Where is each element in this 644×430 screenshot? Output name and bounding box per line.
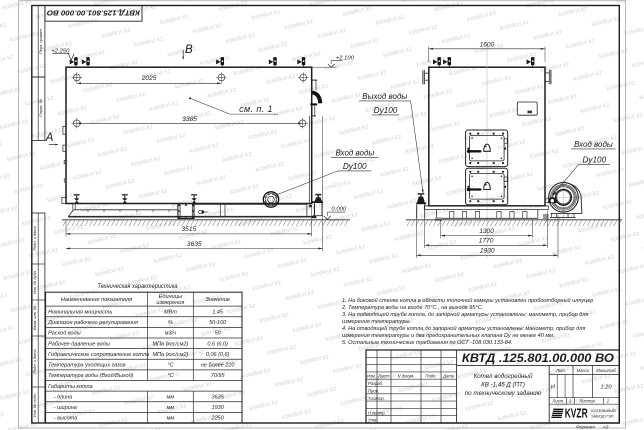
svg-text:Подп.: Подп. — [425, 373, 436, 378]
svg-text:мм: мм — [167, 405, 175, 411]
svg-text:Вход воды: Вход воды — [574, 140, 613, 149]
svg-text:0.000: 0.000 — [331, 207, 346, 213]
svg-text:Температура уходящих газов: Температура уходящих газов — [48, 363, 126, 369]
svg-text:1770: 1770 — [479, 238, 494, 245]
svg-text:Dy100: Dy100 — [582, 156, 606, 165]
svg-text:Разраб.: Разраб. — [368, 381, 383, 386]
svg-text:Справ. №: Справ. № — [38, 98, 43, 116]
svg-text:Температура воды (Вход/Выход): Температура воды (Вход/Выход) — [48, 373, 134, 379]
svg-text:Единицы: Единицы — [159, 294, 182, 300]
svg-text:МВт: МВт — [164, 309, 177, 315]
svg-text:Взам. инв. №: Взам. инв. № — [32, 305, 37, 330]
svg-text:Диапазон рабочего регулировани: Диапазон рабочего регулирования — [47, 320, 138, 326]
svg-text:КВ -1,45 Д (ПТ): КВ -1,45 Д (ПТ) — [481, 381, 525, 388]
svg-text:Номинальная мощность: Номинальная мощность — [48, 309, 112, 315]
svg-text:2250: 2250 — [211, 416, 225, 422]
svg-text:см. п. 1: см. п. 1 — [239, 104, 273, 114]
svg-text:Пров.: Пров. — [368, 389, 379, 394]
svg-text:Лист: Лист — [377, 373, 389, 378]
svg-text:1930: 1930 — [480, 248, 495, 255]
svg-text:- ширина: - ширина — [48, 405, 77, 411]
svg-text:1600: 1600 — [480, 42, 495, 49]
svg-text:1: 1 — [569, 399, 571, 404]
svg-text:3635: 3635 — [187, 241, 202, 248]
svg-text:ЗАВОД РЭП: ЗАВОД РЭП — [591, 414, 613, 419]
svg-text:Рабочее давление воды: Рабочее давление воды — [48, 341, 110, 347]
svg-text:70/95: 70/95 — [211, 373, 226, 379]
svg-text:Выход воды: Выход воды — [362, 92, 407, 101]
svg-text:Котел водогрейный: Котел водогрейный — [474, 373, 533, 380]
svg-text:2. Температура воды на входе: 2. Температура воды на входе 70°С., на в… — [341, 305, 483, 311]
svg-text:3. На подводящей трубе котла,: 3. На подводящей трубе котла, до запорно… — [342, 311, 588, 318]
svg-text:Лит.: Лит. — [555, 368, 566, 373]
svg-text:Инв. № дубл.: Инв. № дубл. — [32, 270, 37, 294]
svg-text:А: А — [45, 132, 54, 144]
svg-text:Т.контр.: Т.контр. — [368, 396, 385, 401]
svg-text:мм: мм — [167, 416, 175, 422]
svg-text:измерения: измерения — [156, 300, 184, 306]
svg-text:1. На боковой стенке котла в: 1. На боковой стенке котла в области топ… — [342, 297, 593, 304]
svg-text:измерения температуры.: измерения температуры. — [342, 319, 411, 325]
svg-text:Формат: Формат — [576, 424, 595, 430]
svg-text:Значение: Значение — [205, 297, 230, 303]
svg-text:В: В — [185, 44, 193, 56]
svg-text:МПа (кгс/см2): МПа (кгс/см2) — [152, 341, 188, 347]
svg-text:измерения температуры и два пр: измерения температуры и два предохраните… — [342, 333, 555, 339]
svg-text:Листов: Листов — [578, 399, 595, 404]
svg-text:50-100: 50-100 — [209, 320, 227, 326]
svg-text:1930: 1930 — [212, 405, 225, 411]
svg-text:м3/ч: м3/ч — [165, 331, 176, 337]
svg-text:3385: 3385 — [182, 116, 197, 123]
svg-text:0,06 (0,6): 0,06 (0,6) — [206, 352, 230, 358]
svg-text:3515: 3515 — [182, 226, 197, 233]
svg-text:Лист: Лист — [551, 399, 563, 404]
svg-text:КОТЕЛЬНЫЙ: КОТЕЛЬНЫЙ — [591, 408, 616, 413]
svg-text:Подп. и дата: Подп. и дата — [32, 225, 37, 250]
svg-text:Утв.: Утв. — [368, 418, 378, 423]
svg-text:Масса: Масса — [577, 368, 590, 373]
svg-text:Габариты котла: Габариты котла — [48, 384, 93, 390]
svg-text:- длина: - длина — [48, 394, 72, 400]
svg-text:1,45: 1,45 — [212, 309, 224, 315]
svg-text:Подп. и дата: Подп. и дата — [32, 348, 37, 373]
svg-text:Дата: Дата — [442, 373, 455, 378]
svg-text:Изм.: Изм. — [367, 373, 376, 378]
svg-text:°С: °С — [167, 363, 173, 369]
svg-text:Инв. № подл.: Инв. № подл. — [32, 393, 37, 417]
svg-text:по техническому заданию: по техническому заданию — [465, 390, 542, 397]
svg-text:Расход воды: Расход воды — [48, 331, 81, 337]
svg-text:Техническая характеристика: Техническая характеристика — [98, 283, 178, 290]
svg-text:А3: А3 — [602, 424, 609, 430]
svg-text:%: % — [168, 320, 173, 326]
svg-text:Dy100: Dy100 — [343, 162, 367, 171]
svg-text:50: 50 — [215, 331, 222, 337]
svg-text:1:20: 1:20 — [600, 384, 612, 390]
svg-text:5. Остальные технические треб: 5. Остальные технические требования по О… — [342, 340, 512, 346]
svg-text:3635: 3635 — [212, 394, 225, 400]
svg-text:KVZR: KVZR — [565, 406, 588, 420]
svg-text:2025: 2025 — [141, 75, 157, 82]
svg-text:1300: 1300 — [479, 228, 494, 235]
svg-text:0,6 (6,0): 0,6 (6,0) — [207, 341, 228, 347]
svg-text:не более 220: не более 220 — [201, 363, 236, 369]
svg-text:N докум.: N докум. — [398, 373, 415, 378]
svg-text:КВТД .125.801.00.000 ВО: КВТД .125.801.00.000 ВО — [462, 351, 614, 365]
svg-text:Н.контр.: Н.контр. — [368, 410, 386, 415]
svg-text:МПа (кгс/см2): МПа (кгс/см2) — [152, 352, 188, 358]
svg-text:Масштаб: Масштаб — [596, 368, 616, 373]
svg-text:мм: мм — [167, 394, 175, 400]
svg-text:Dy100: Dy100 — [374, 106, 398, 115]
svg-text:°С: °С — [167, 373, 173, 379]
svg-text:Вход воды: Вход воды — [335, 148, 374, 157]
svg-text:4. На отводящей трубе котла,д: 4. На отводящей трубе котла,до запорной … — [342, 325, 585, 332]
svg-text:Наименование показателя: Наименование показателя — [61, 297, 132, 303]
svg-text:Гидравлическое сопротивление к: Гидравлическое сопротивление котла — [48, 352, 149, 358]
svg-text:- высота: - высота — [48, 416, 77, 422]
svg-text:КВТД.125.801.00.000 ВО: КВТД.125.801.00.000 ВО — [47, 9, 140, 18]
svg-text:Перв. примен.: Перв. примен. — [38, 28, 43, 54]
